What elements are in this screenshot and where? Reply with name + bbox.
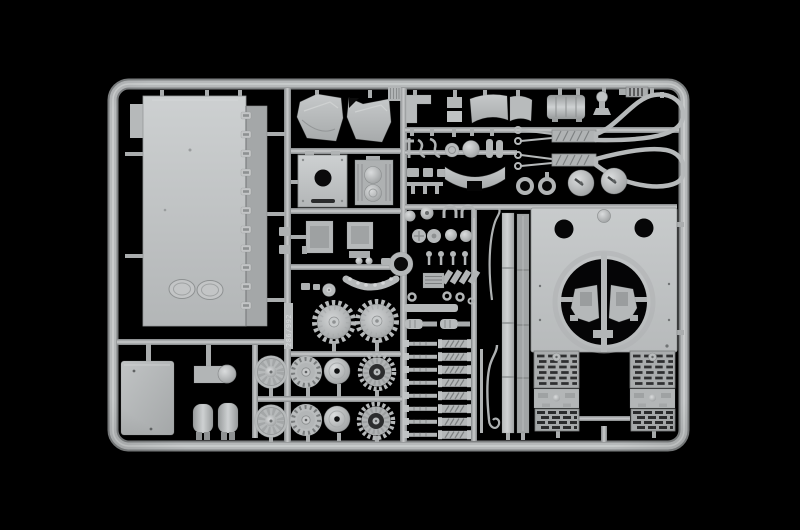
vignette-overlay <box>0 0 800 530</box>
sprue-photo: 286/992 <box>0 0 800 530</box>
photo-stage: 286/992 <box>0 0 800 530</box>
